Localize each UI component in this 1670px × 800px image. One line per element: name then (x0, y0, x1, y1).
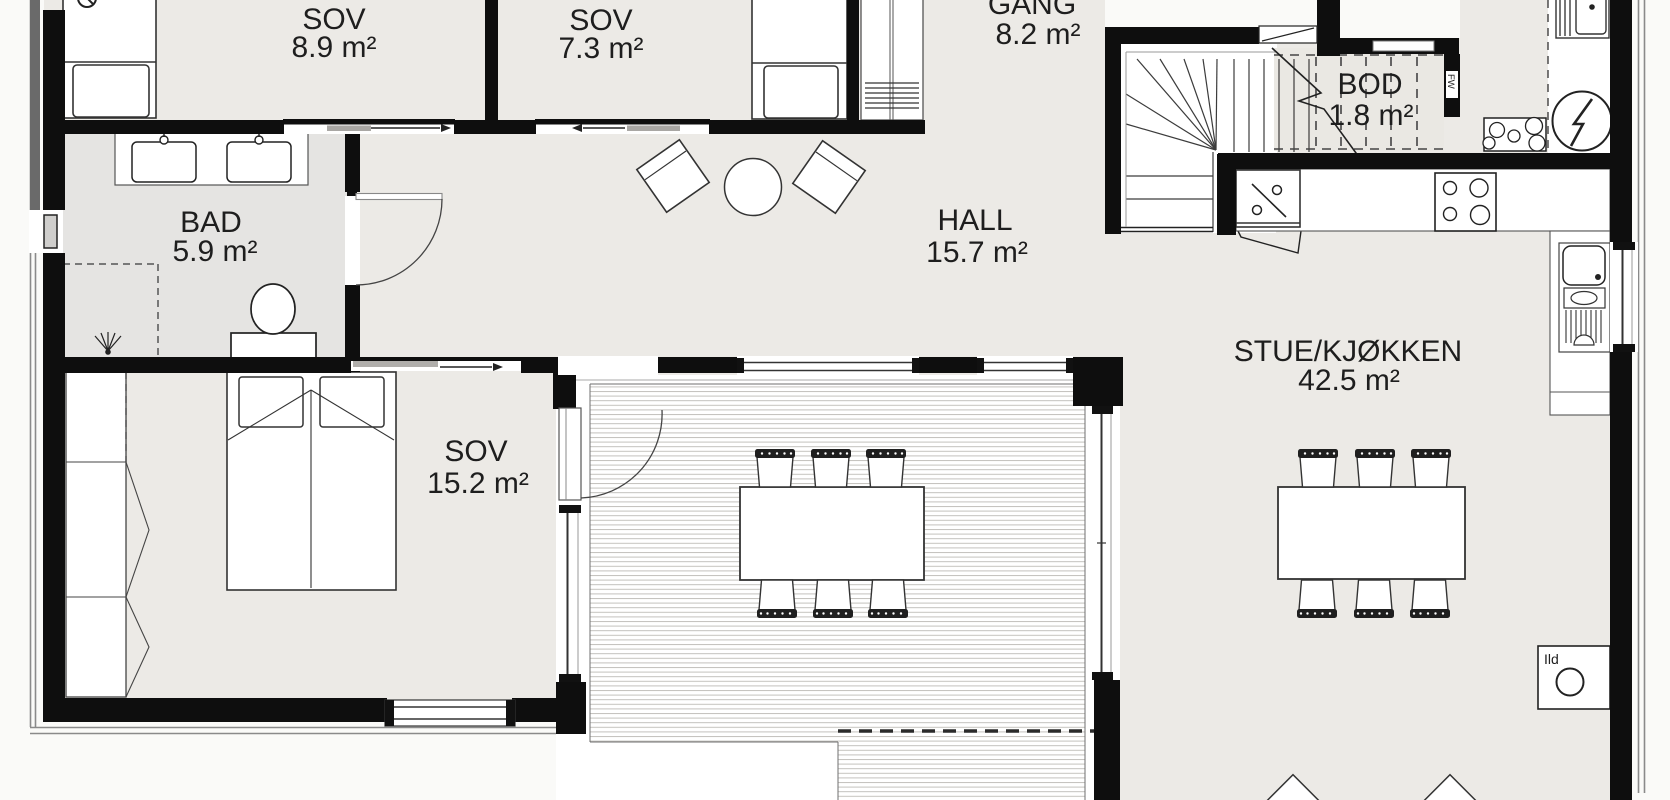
svg-text:8.9 m²: 8.9 m² (291, 31, 376, 64)
svg-text:Ild: Ild (1544, 651, 1559, 667)
svg-text:FW: FW (1445, 74, 1456, 89)
svg-text:7.3 m²: 7.3 m² (558, 32, 643, 65)
svg-text:15.2 m²: 15.2 m² (427, 467, 529, 500)
svg-text:HALL: HALL (937, 204, 1012, 237)
svg-text:1.8 m²: 1.8 m² (1328, 99, 1413, 132)
svg-text:SOV: SOV (444, 435, 507, 468)
svg-text:42.5 m²: 42.5 m² (1298, 364, 1400, 397)
svg-text:15.7 m²: 15.7 m² (926, 236, 1028, 269)
svg-text:8.2 m²: 8.2 m² (995, 18, 1080, 51)
svg-text:5.9 m²: 5.9 m² (172, 235, 257, 268)
svg-text:BOD: BOD (1337, 68, 1402, 101)
